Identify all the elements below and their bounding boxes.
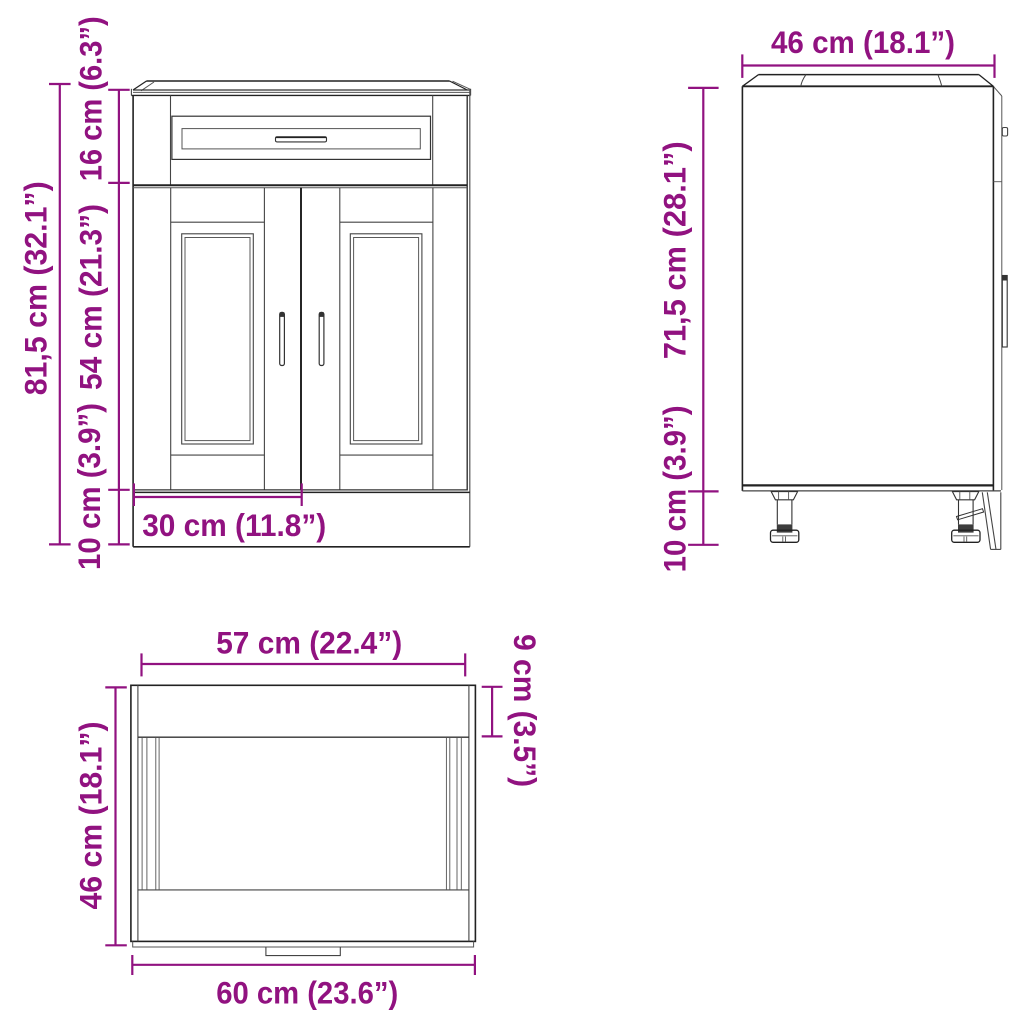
svg-text:71,5 cm (28.1”): 71,5 cm (28.1”): [657, 141, 693, 359]
svg-text:81,5 cm (32.1”): 81,5 cm (32.1”): [18, 181, 54, 395]
svg-text:46 cm (18.1”): 46 cm (18.1”): [771, 24, 955, 60]
svg-text:30 cm (11.8”): 30 cm (11.8”): [142, 507, 326, 543]
svg-text:10 cm (3.9”): 10 cm (3.9”): [71, 403, 107, 570]
svg-text:10 cm (3.9”): 10 cm (3.9”): [657, 405, 693, 572]
svg-text:46 cm (18.1”): 46 cm (18.1”): [73, 722, 109, 910]
svg-text:9 cm (3.5”): 9 cm (3.5”): [507, 634, 543, 787]
svg-text:60 cm (23.6”): 60 cm (23.6”): [216, 975, 398, 1011]
svg-text:54 cm (21.3”): 54 cm (21.3”): [73, 204, 109, 390]
svg-text:57 cm (22.4”): 57 cm (22.4”): [216, 624, 402, 660]
svg-text:16 cm (6.3”): 16 cm (6.3”): [73, 16, 109, 181]
